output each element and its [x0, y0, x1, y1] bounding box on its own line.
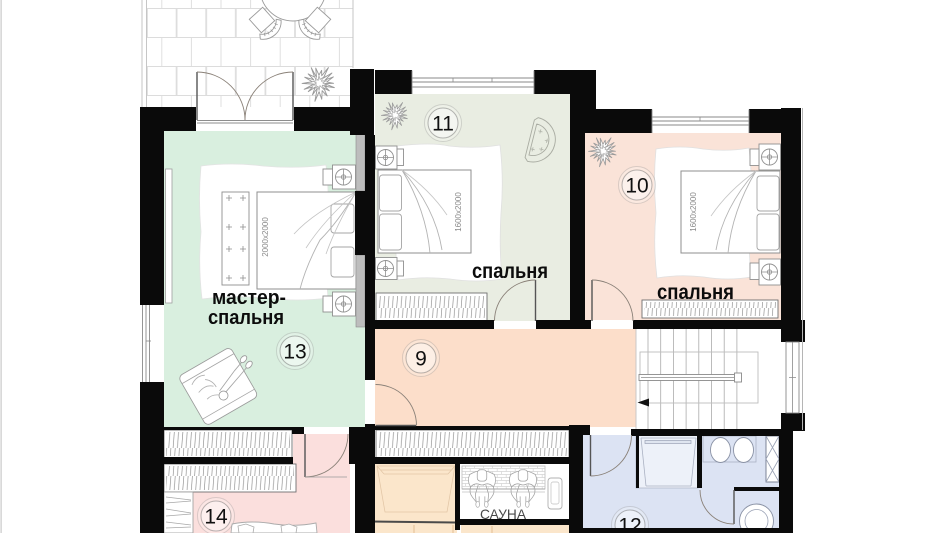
- svg-text:11: 11: [432, 113, 454, 136]
- svg-text:1600x2000: 1600x2000: [454, 192, 463, 232]
- svg-text:мастер-: мастер-: [212, 287, 286, 309]
- svg-text:9: 9: [415, 348, 427, 371]
- svg-text:2000x2000: 2000x2000: [261, 217, 270, 257]
- svg-text:1600x2000: 1600x2000: [689, 192, 698, 232]
- svg-text:спальня: спальня: [208, 307, 284, 329]
- svg-text:14: 14: [204, 506, 228, 529]
- svg-text:спальня: спальня: [472, 260, 548, 283]
- svg-text:13: 13: [283, 341, 306, 364]
- svg-text:спальня: спальня: [657, 281, 734, 304]
- svg-text:10: 10: [625, 175, 648, 198]
